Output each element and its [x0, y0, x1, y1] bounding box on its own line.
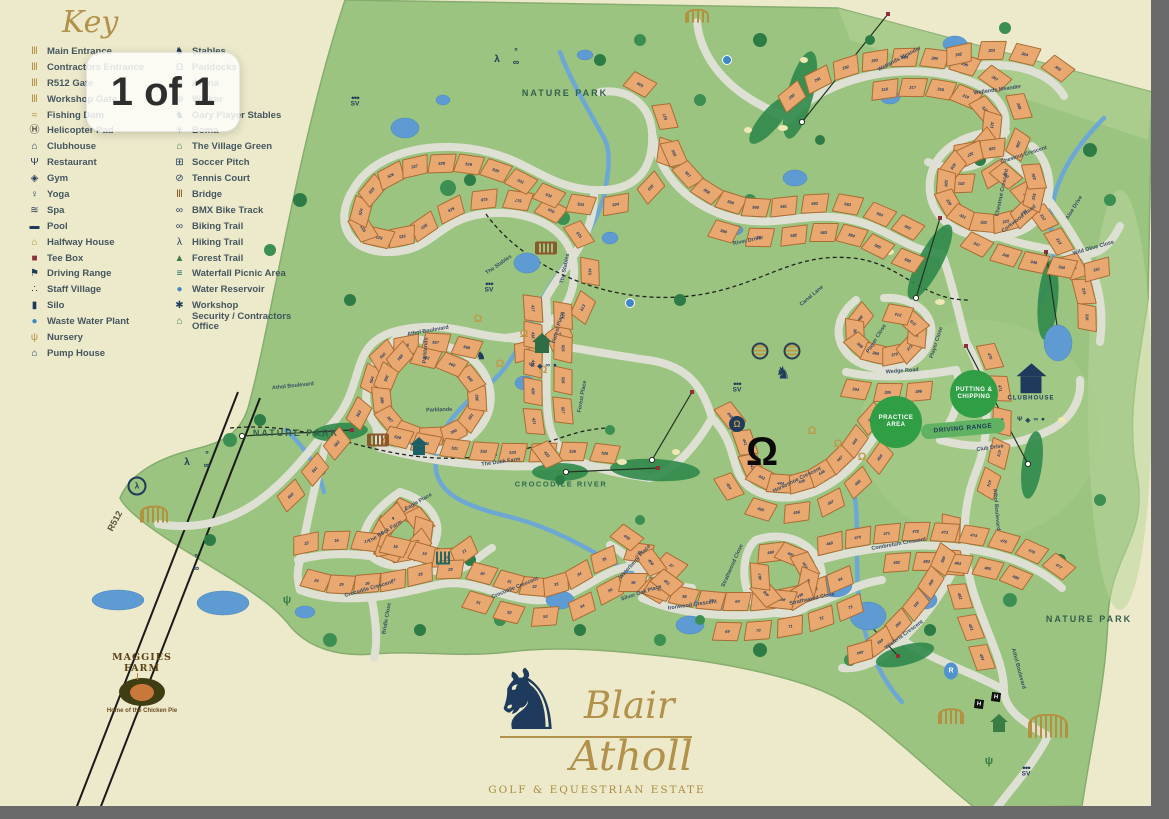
key-item-water-reservoir: ●Water Reservoir: [173, 282, 310, 298]
tree: [1003, 593, 1017, 607]
blair-atholl-logo: ♞ Blair Atholl GOLF & EQUESTRIAN ESTATE: [472, 656, 742, 796]
key-item-label: Forest Trail: [192, 254, 310, 264]
dot-icon: ●: [173, 285, 186, 295]
tree: [605, 425, 615, 435]
ring-icon: [784, 343, 801, 360]
sv-badge-icon: ●●●SV: [1022, 767, 1031, 778]
key-item-tennis-court: ⊘Tennis Court: [173, 171, 310, 187]
plot-582: 582: [780, 224, 808, 246]
key-item-label: Staff Village: [47, 285, 165, 295]
sv-badge-icon: ●●●SV: [351, 97, 360, 108]
cyclist-icon: ∞: [513, 50, 519, 70]
key-item-biking-trail: ∞Biking Trail: [173, 219, 310, 235]
tree: [1104, 194, 1116, 206]
tree: [753, 643, 767, 657]
tree: [440, 180, 456, 196]
plot-467: 467: [750, 563, 771, 592]
blue-dot-icon: [625, 298, 635, 308]
key-item-label: Pump House: [47, 349, 165, 359]
fish-icon: ≈: [28, 111, 41, 121]
logo-name-blair: Blair: [584, 684, 675, 727]
plot-316: 316: [872, 78, 899, 101]
pine-icon: ▲: [173, 254, 186, 264]
helipad-icon: H: [975, 700, 984, 709]
house-icon: [410, 437, 428, 455]
plot-562: 562: [800, 193, 829, 214]
key-item-the-village-green: ⌂The Village Green: [173, 139, 310, 155]
crocodile-river-label: CROCODILE RIVER: [515, 480, 608, 489]
house-icon: [990, 714, 1008, 732]
house-icon: ⌂: [28, 142, 41, 152]
horse-silhouette-icon: ♞: [490, 658, 565, 742]
key-item-label: Bridge: [192, 190, 310, 200]
tree: [254, 414, 266, 426]
house-icon: CLUBHOUSE: [1007, 363, 1054, 401]
plot-70: 70: [744, 620, 773, 641]
bridge-icon: [535, 242, 557, 255]
key-item-staff-village: ∴Staff Village: [28, 282, 165, 298]
horse-head-icon: ♞: [775, 365, 790, 384]
gate-icon: Ⅲ: [28, 79, 41, 89]
house-icon: ⌂: [28, 238, 41, 248]
chicken-pie-icon: [119, 678, 165, 706]
tree: [574, 624, 586, 636]
maggies-farm-logo: MAGGIES FARM Home of the Chicken Pie: [96, 652, 188, 714]
gate-icon: Ⅲ: [28, 63, 41, 73]
key-item-label: Gym: [47, 174, 165, 184]
key-item-label: The Village Green: [192, 142, 310, 152]
tree: [753, 33, 767, 47]
key-item-tee-box: ■Tee Box: [28, 251, 165, 267]
horseshoe-icon: Ω: [496, 354, 505, 372]
bmx-icon: λ: [128, 477, 147, 496]
tee-box-marker: [964, 344, 968, 348]
helipad-icon: Ⓗ: [28, 126, 41, 136]
key-item-label: Silo: [47, 301, 165, 311]
tree: [999, 22, 1011, 34]
maggies-farm-title-line1: MAGGIES: [96, 652, 188, 663]
tee-box-marker: [896, 654, 900, 658]
sv-badge-icon: ●●●SV: [733, 383, 742, 394]
contractors-entrance-icon: [685, 9, 709, 23]
green-marker: [563, 469, 568, 474]
group-icon: ∴: [28, 285, 41, 295]
nature-park-label: NATURE PARK: [522, 88, 608, 98]
yoga-icon: ♀: [28, 190, 41, 200]
estate-map-page: 5115125135145155165175185195205215225235…: [0, 0, 1169, 819]
rider-icon: ♞: [477, 346, 486, 364]
plot-53: 53: [531, 606, 560, 627]
key-title: Key: [62, 6, 350, 40]
key-item-soccer-pitch: ⊞Soccer Pitch: [173, 155, 310, 171]
tree: [323, 633, 337, 647]
key-item-yoga: ♀Yoga: [28, 187, 165, 203]
stables-circle-icon: Ω: [729, 416, 745, 432]
key-item-label: Workshop: [192, 301, 310, 311]
key-item-gym: ◈Gym: [28, 171, 165, 187]
bars-icon: ≡: [173, 269, 186, 279]
waterfall-icon: [436, 552, 450, 565]
racket-icon: ⊘: [173, 174, 186, 184]
green-marker: [799, 119, 804, 124]
tree: [1083, 143, 1097, 157]
horseshoe-icon: Ω: [834, 434, 843, 452]
key-item-waterfall-picnic-area: ≡Waterfall Picnic Area: [173, 266, 310, 282]
maggies-farm-tagline: Home of the Chicken Pie: [96, 708, 188, 714]
tree: [654, 634, 666, 646]
teebox-icon: ■: [28, 254, 41, 264]
sv-badge-icon: ●●●SV: [485, 283, 494, 294]
plot-535: 535: [558, 442, 588, 461]
viewer-frame-bottom: [0, 806, 1169, 819]
plot-528: 528: [427, 153, 456, 173]
key-item-pool: ▬Pool: [28, 219, 165, 235]
tree: [594, 54, 606, 66]
gear-icon: ✱: [173, 301, 186, 311]
clubhouse-label: CLUBHOUSE: [1007, 395, 1054, 401]
bridge-icon: Ⅲ: [173, 190, 186, 200]
reservoir-r-icon: R: [944, 663, 958, 680]
plot-303: 303: [977, 41, 1007, 60]
r512-gate-icon: [140, 506, 168, 523]
gym-icon: ◈: [28, 174, 41, 184]
house-icon: ⌂: [28, 349, 41, 359]
key-item-label: Waterfall Picnic Area: [192, 269, 310, 279]
plot-518: 518: [471, 189, 499, 211]
key-item-hiking-trail: λHiking Trail: [173, 235, 310, 251]
key-item-label: Tee Box: [47, 254, 165, 264]
maggies-farm-title-line2: FARM: [96, 663, 188, 674]
page-indicator: 1 of 1: [86, 52, 240, 132]
plot-417: 417: [522, 294, 543, 323]
plant-icon: ψ: [28, 333, 41, 343]
nature-park-label: NATURE PARK: [1046, 614, 1132, 624]
green-marker: [1025, 461, 1030, 466]
tee-box-marker: [656, 466, 660, 470]
amenity-row-icon: Ψ◈∞●: [1017, 416, 1045, 424]
key-item-label: Soccer Pitch: [192, 158, 310, 168]
amenity-row-icon: Ψ◈∞●: [529, 362, 557, 370]
gate-icon: Ⅲ: [28, 95, 41, 105]
tee-box-marker: [690, 390, 694, 394]
helipad-icon: H: [992, 693, 1001, 702]
tree: [865, 35, 875, 45]
hiker-icon: λ: [173, 238, 186, 248]
cyclist-icon: ∞: [193, 556, 199, 576]
pool-icon: ▬: [28, 222, 41, 232]
key-item-label: Water Reservoir: [192, 285, 310, 295]
key-item-clubhouse: ⌂Clubhouse: [28, 139, 165, 155]
plot-317: 317: [898, 78, 928, 97]
key-item-label: BMX Bike Track: [192, 206, 310, 216]
horseshoe-icon: Ω: [858, 447, 867, 465]
plant-icon: ψ: [283, 590, 291, 608]
horseshoe-icon: Ω: [808, 421, 817, 439]
gate-icon: Ⅲ: [28, 47, 41, 57]
plot-316: 316: [1078, 303, 1098, 333]
key-item-forest-trail: ▲Forest Trail: [173, 251, 310, 267]
plot-69: 69: [712, 621, 743, 641]
key-item-nursery: ψNursery: [28, 330, 165, 346]
key-item-security-contractors-office: ⌂Security / Contractors Office: [173, 314, 310, 330]
workshop-gate-icon: [938, 708, 964, 724]
key-item-pump-house: ⌂Pump House: [28, 346, 165, 362]
wheel-icon: ∞: [173, 222, 186, 232]
house-icon: ⌂: [173, 317, 186, 327]
hiker-icon: λ: [184, 452, 190, 470]
key-item-restaurant: ΨRestaurant: [28, 155, 165, 171]
key-item-label: Tennis Court: [192, 174, 310, 184]
cyclist-icon: ∞: [204, 453, 210, 473]
plot-514: 514: [580, 257, 600, 286]
plot-482: 482: [882, 552, 911, 573]
tree: [635, 515, 645, 525]
key-item-label: Waste Water Plant: [47, 317, 165, 327]
putting-chipping-label: PUTTING & CHIPPING: [950, 370, 998, 418]
plot-527: 527: [553, 397, 575, 425]
horseshoe-icon: Ω: [474, 309, 483, 327]
tee-box-marker: [1044, 250, 1048, 254]
tree: [815, 135, 825, 145]
green-marker: [649, 457, 654, 462]
key-item-label: Halfway House: [47, 238, 165, 248]
logo-name-atholl: Atholl: [570, 732, 693, 780]
key-item-label: Nursery: [47, 333, 165, 343]
road-label-parklands: Parklands: [420, 404, 459, 414]
restaurant-icon: Ψ: [28, 158, 41, 168]
key-item-label: Driving Range: [47, 269, 165, 279]
plot-560: 560: [741, 197, 772, 217]
main-entrance-icon: [1028, 714, 1068, 738]
key-item-label: Spa: [47, 206, 165, 216]
green-marker: [913, 295, 918, 300]
ring-icon: [752, 343, 769, 360]
dot-icon: ●: [28, 317, 41, 327]
key-item-halfway-house: ⌂Halfway House: [28, 235, 165, 251]
key-item-label: Security / Contractors Office: [192, 312, 310, 332]
key-item-waste-water-plant: ●Waste Water Plant: [28, 314, 165, 330]
key-item-spa: ≋Spa: [28, 203, 165, 219]
tee-box-marker: [350, 428, 354, 432]
tree: [464, 174, 476, 186]
nature-park-label: NATURE PARK: [253, 428, 339, 438]
tree: [674, 294, 686, 306]
green-marker: [239, 433, 244, 438]
plot-16: 16: [321, 530, 350, 550]
key-item-label: Biking Trail: [192, 222, 310, 232]
grid-icon: ⊞: [173, 158, 186, 168]
plant-icon: ψ: [985, 751, 993, 769]
key-item-label: Clubhouse: [47, 142, 165, 152]
hiker-icon: λ: [494, 49, 500, 67]
plot-420: 420: [523, 377, 543, 407]
practice-area-label: PRACTICE AREA: [870, 396, 922, 448]
plot-583: 583: [809, 223, 839, 242]
key-item-bmx-bike-track: ∞BMX Bike Track: [173, 203, 310, 219]
spa-icon: ≋: [28, 206, 41, 216]
tree: [1094, 494, 1106, 506]
viewer-frame-right: [1151, 0, 1169, 819]
tree: [204, 534, 216, 546]
key-item-driving-range: ⚑Driving Range: [28, 266, 165, 282]
house-icon: ⌂: [173, 142, 186, 152]
tee-box-marker: [886, 12, 890, 16]
wheel-icon: ∞: [173, 206, 186, 216]
key-item-silo: ▮Silo: [28, 298, 165, 314]
tree: [414, 624, 426, 636]
logo-subtitle: GOLF & EQUESTRIAN ESTATE: [472, 784, 722, 796]
plot-421: 421: [523, 408, 546, 435]
tree: [223, 433, 237, 447]
blue-dot-icon: [722, 55, 732, 65]
tree: [634, 34, 646, 46]
tee-box-marker: [938, 216, 942, 220]
tree: [695, 615, 705, 625]
bridge-icon: [367, 434, 389, 447]
key-item-label: Yoga: [47, 190, 165, 200]
tree: [694, 94, 706, 106]
horseshoe-big-icon: Ω: [746, 432, 778, 472]
horseshoe-icon: Ω: [520, 324, 529, 342]
key-item-bridge: ⅢBridge: [173, 187, 310, 203]
key-item-label: Pool: [47, 222, 165, 232]
plot-561: 561: [770, 195, 798, 217]
key-item-label: Restaurant: [47, 158, 165, 168]
house-icon: [532, 333, 552, 353]
key-item-label: Hiking Trail: [192, 238, 310, 248]
tree: [924, 624, 936, 636]
flag-icon: ⚑: [28, 269, 41, 279]
silo-icon: ▮: [28, 301, 41, 311]
